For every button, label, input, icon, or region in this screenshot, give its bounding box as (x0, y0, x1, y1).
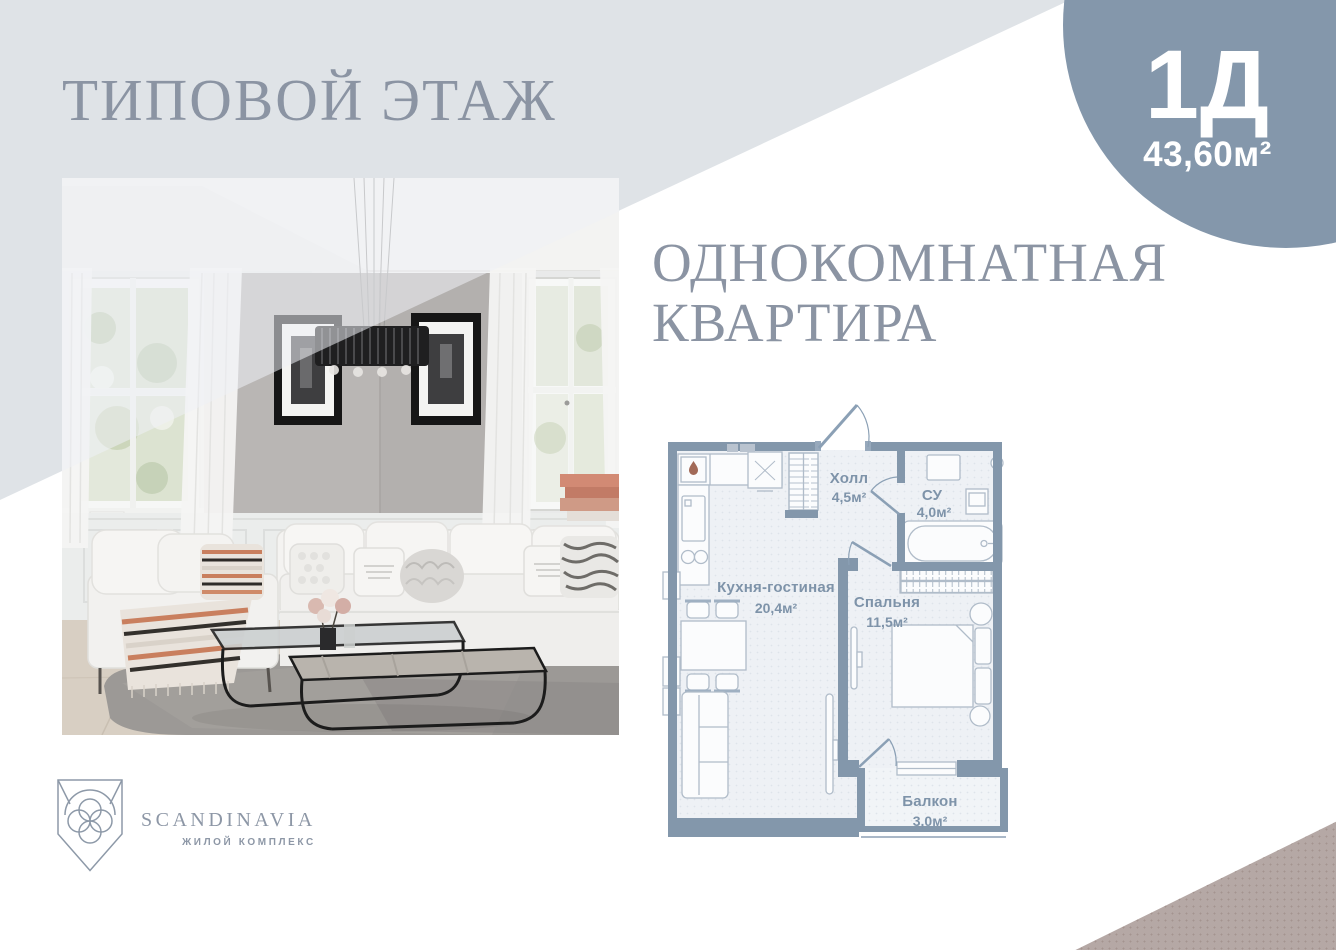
logo: SCANDINAVIA ЖИЛОЙ КОМПЛЕКС (57, 779, 316, 872)
unit-badge-text: 1Д 43,60м² (1095, 36, 1320, 174)
logo-tagline: ЖИЛОЙ КОМПЛЕКС (141, 837, 316, 848)
room-name-hall: Холл (830, 470, 868, 487)
floor-plan: Кухня-гостиная 20,4м² Холл 4,5м² СУ 4,0м… (655, 398, 1015, 848)
books-stack (560, 474, 619, 521)
apartment-title-line2: КВАРТИРА (652, 292, 937, 353)
room-name-bathroom: СУ (922, 487, 943, 504)
room-name-balcony: Балкон (902, 793, 957, 810)
unit-number: 1Д (1095, 36, 1320, 135)
room-area-balcony: 3,0м² (913, 813, 948, 829)
sofa-icon (682, 692, 728, 798)
room-name-kitchen: Кухня-гостиная (717, 579, 835, 596)
zebra-pillow (560, 536, 619, 598)
hall-closet-icon (789, 453, 818, 510)
apartment-type-title: ОДНОКОМНАТНАЯКВАРТИРА (652, 233, 1167, 353)
logo-text: SCANDINAVIA ЖИЛОЙ КОМПЛЕКС (141, 809, 316, 848)
brochure-page: 1Д 43,60м² ТИПОВОЙ ЭТАЖ ОДНОКОМНАТНАЯКВА… (0, 0, 1336, 950)
room-area-bathroom: 4,0м² (917, 504, 952, 520)
room-area-kitchen: 20,4м² (755, 600, 798, 616)
floor-title: ТИПОВОЙ ЭТАЖ (62, 66, 557, 135)
striped-pillow (200, 544, 264, 600)
interior-photo (62, 178, 619, 735)
apartment-title-line1: ОДНОКОМНАТНАЯ (652, 232, 1167, 293)
room-area-bedroom: 11,5м² (866, 614, 908, 630)
logo-shield-icon (57, 779, 123, 872)
room-area-hall: 4,5м² (832, 489, 867, 505)
unit-total-area: 43,60м² (1095, 136, 1320, 175)
room-name-bedroom: Спальня (854, 594, 920, 611)
logo-name: SCANDINAVIA (141, 809, 316, 832)
